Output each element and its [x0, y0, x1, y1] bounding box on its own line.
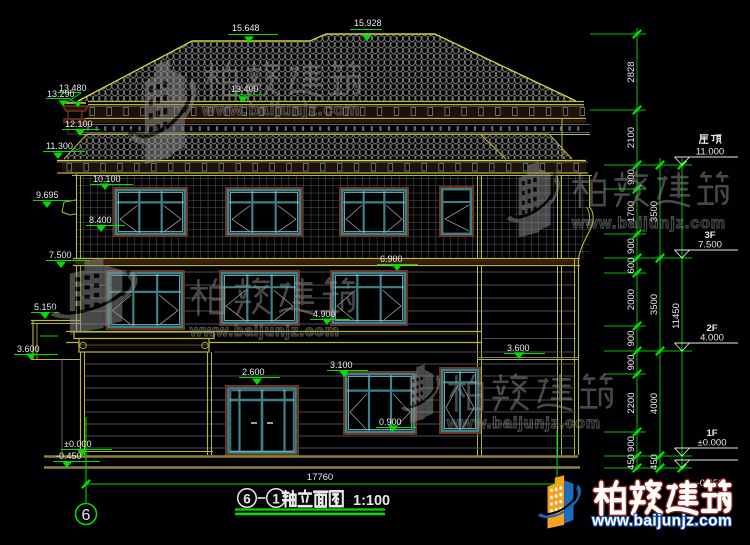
svg-text:3.600: 3.600: [17, 344, 40, 354]
svg-text:2.600: 2.600: [242, 367, 265, 377]
svg-text:8.400: 8.400: [89, 215, 112, 225]
svg-text:15.928: 15.928: [354, 18, 382, 28]
svg-text:www.baijunjz.com: www.baijunjz.com: [189, 323, 340, 340]
svg-text:4000: 4000: [649, 393, 660, 414]
svg-text:11.000: 11.000: [696, 147, 724, 158]
svg-text:11.300: 11.300: [46, 141, 73, 151]
svg-text:www.baijunjz.com: www.baijunjz.com: [571, 215, 726, 232]
svg-text:±0.000: ±0.000: [698, 438, 727, 449]
svg-text:17760: 17760: [307, 472, 333, 483]
svg-text:13.290: 13.290: [47, 89, 75, 99]
svg-text:www.baijunjz.com: www.baijunjz.com: [591, 513, 732, 530]
svg-text:1:100: 1:100: [353, 493, 390, 509]
svg-text:6: 6: [243, 492, 251, 507]
svg-text:10.100: 10.100: [93, 174, 121, 184]
svg-text:600: 600: [626, 258, 637, 274]
svg-text:2100: 2100: [626, 127, 637, 148]
svg-text:12.100: 12.100: [65, 119, 93, 129]
svg-text:www.baijunjz.com: www.baijunjz.com: [446, 415, 601, 432]
svg-text:2000: 2000: [626, 289, 637, 310]
svg-text:7.500: 7.500: [698, 240, 722, 251]
svg-text:900: 900: [626, 436, 637, 452]
svg-text:900: 900: [626, 331, 637, 347]
svg-text:2200: 2200: [626, 392, 637, 413]
svg-text:9.695: 9.695: [36, 190, 59, 200]
svg-text:4.000: 4.000: [700, 333, 724, 344]
svg-text:11450: 11450: [671, 303, 682, 329]
svg-text:3500: 3500: [649, 294, 660, 315]
svg-text:6: 6: [82, 507, 91, 524]
svg-text:900: 900: [626, 238, 637, 254]
svg-text:3.100: 3.100: [330, 360, 353, 370]
svg-text:2828: 2828: [626, 61, 637, 82]
svg-text:6.900: 6.900: [380, 254, 403, 264]
svg-text:3.600: 3.600: [507, 343, 530, 353]
svg-text:900: 900: [626, 169, 637, 185]
svg-text:450: 450: [649, 454, 660, 470]
svg-text:www.baijunjz.com: www.baijunjz.com: [201, 101, 360, 119]
svg-text:1: 1: [272, 492, 280, 507]
svg-text:±0.000: ±0.000: [64, 439, 91, 449]
svg-text:7.500: 7.500: [49, 250, 72, 260]
svg-text:450: 450: [626, 454, 637, 470]
svg-text:900: 900: [626, 355, 637, 371]
svg-text:15.648: 15.648: [232, 23, 260, 33]
svg-text:-0.450: -0.450: [56, 451, 82, 461]
